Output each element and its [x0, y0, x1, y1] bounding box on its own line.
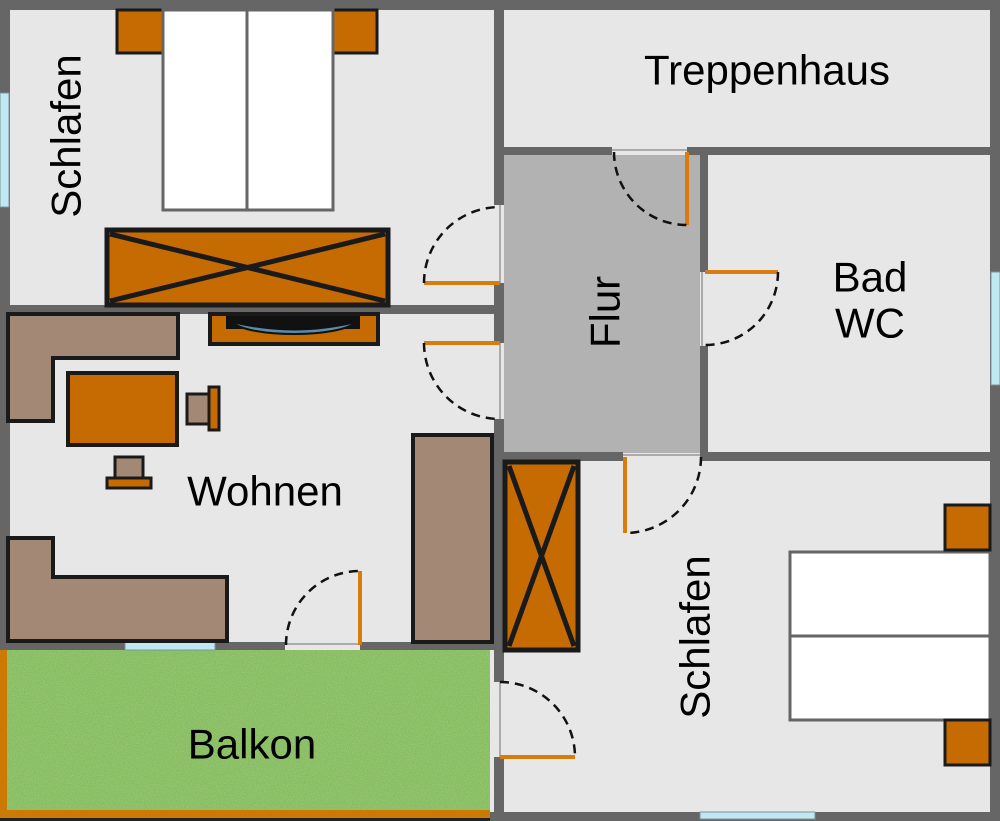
window-bathroom — [991, 272, 1000, 385]
balcony-railing-left — [0, 650, 7, 821]
floorplan-svg: Schlafen Treppenhaus Flur Bad WC Wohnen … — [0, 0, 1000, 821]
wall-center-1 — [494, 10, 504, 205]
threshold-stairwell — [612, 149, 687, 151]
room-label-bedroom-top: Schlafen — [43, 54, 90, 217]
bed2-mattress-bottom — [790, 636, 990, 720]
room-label-bedroom-bottom: Schlafen — [672, 555, 719, 718]
threshold-living-balcony — [285, 643, 360, 645]
wall-stairwell-bottom-left — [494, 147, 612, 155]
room-label-bathroom-line2: WC — [835, 300, 905, 347]
window-bedroom-bottom — [700, 812, 815, 819]
room-label-bathroom-line1: Bad — [833, 254, 908, 301]
door-panel-balcony-bedroom — [500, 755, 575, 759]
wall-hall-bath-bottom — [700, 346, 708, 452]
desk — [68, 373, 177, 445]
door-panel-bedroom-top — [424, 281, 500, 285]
room-label-balcony: Balkon — [188, 721, 316, 768]
bed-mattress-left — [163, 10, 247, 210]
wall-center-4 — [494, 757, 504, 812]
door-panel-bathroom — [705, 270, 778, 274]
stool-base — [107, 478, 151, 488]
cabinet-right — [413, 435, 492, 642]
bed2-mattress-top — [790, 552, 990, 636]
door-panel-living — [424, 341, 500, 345]
nightstand-top-right — [333, 10, 377, 53]
threshold-bathroom — [701, 272, 703, 346]
chair-seat — [187, 394, 209, 424]
wall-center-2 — [494, 283, 504, 343]
room-label-stairwell: Treppenhaus — [644, 47, 890, 94]
wardrobe-bedroom-top — [107, 230, 388, 305]
wall-hall-bottom-right — [700, 452, 1000, 461]
wardrobe-bedroom-bottom — [505, 462, 578, 650]
nightstand-bottom-1 — [945, 505, 990, 550]
threshold-bedroom-top — [499, 205, 501, 283]
nightstand-top-left — [117, 10, 163, 53]
bed-mattress-right — [247, 10, 333, 210]
door-panel-bedroom-bottom — [623, 457, 627, 533]
stool-seat — [115, 457, 143, 479]
wall-stairwell-bottom-right — [687, 147, 1000, 155]
window-bedroom-top — [0, 93, 9, 207]
threshold-balcony-bedroom — [499, 682, 501, 757]
door-panel-living-balcony — [358, 571, 362, 645]
door-panel-stairwell — [685, 152, 689, 225]
balcony-railing-bottom — [0, 810, 490, 818]
room-label-living: Wohnen — [187, 468, 343, 515]
wall-hall-bath-top — [700, 155, 708, 272]
tv-sideboard — [210, 314, 378, 344]
threshold-bedroom-bottom — [623, 454, 700, 456]
threshold-living — [499, 343, 501, 419]
room-label-hallway: Flur — [582, 276, 629, 348]
nightstand-bottom-2 — [945, 720, 990, 765]
